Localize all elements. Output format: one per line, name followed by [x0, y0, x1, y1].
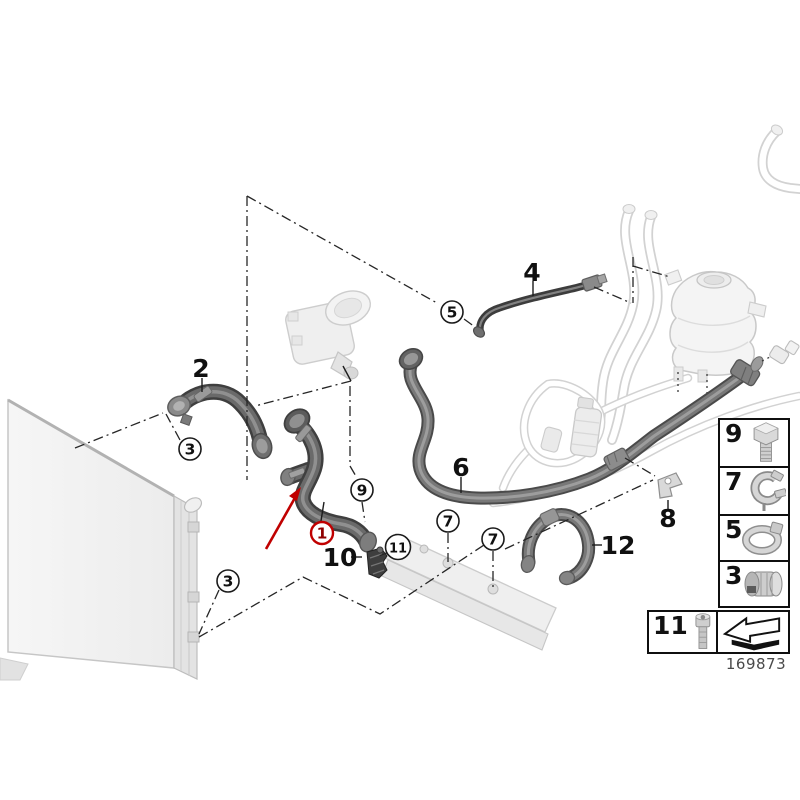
- direction-arrow-icon: [722, 612, 784, 652]
- legend-bottom-row: 11: [647, 610, 790, 654]
- legend-number: 5: [725, 517, 742, 542]
- clip-10: [367, 547, 387, 578]
- diagram-canvas: 24681012 133577911: [0, 0, 800, 800]
- hose-12-loop-hose: [520, 508, 589, 586]
- callout-3[interactable]: 3: [217, 570, 239, 592]
- callout-1[interactable]: 1: [311, 522, 333, 544]
- part-number-text: 169873: [700, 655, 800, 673]
- legend-cell-3[interactable]: 3: [720, 562, 789, 606]
- legend-cell-9[interactable]: 9: [720, 420, 789, 468]
- radiator: [0, 400, 204, 680]
- legend-number: 3: [725, 563, 742, 588]
- callout-number: 3: [185, 441, 196, 459]
- part-label-2[interactable]: 2: [192, 354, 209, 383]
- callout-5[interactable]: 5: [441, 301, 463, 323]
- callout-number: 7: [488, 531, 499, 549]
- part-label-6[interactable]: 6: [452, 453, 469, 482]
- callout-3[interactable]: 3: [179, 438, 201, 460]
- legend-cell-7[interactable]: 7: [720, 468, 789, 516]
- part-label-10[interactable]: 10: [323, 543, 358, 572]
- legend-cell-5[interactable]: 5: [720, 516, 789, 562]
- hex-bolt-icon: [746, 421, 786, 465]
- socket-bolt-icon: [688, 612, 716, 652]
- legend-number: 7: [725, 469, 742, 494]
- callout-7[interactable]: 7: [437, 510, 459, 532]
- callout-7[interactable]: 7: [482, 528, 504, 550]
- bracket-8: [658, 473, 682, 498]
- callout-number: 11: [389, 542, 407, 557]
- callout-number: 1: [317, 525, 328, 543]
- quick-coupling-icon: [742, 563, 786, 605]
- callout-number: 5: [447, 304, 458, 322]
- valve-cluster: [524, 383, 602, 463]
- highlight-arrow: [266, 487, 301, 549]
- callout-number: 9: [357, 482, 368, 500]
- hose-clamp-icon: [742, 517, 786, 559]
- part-label-4[interactable]: 4: [523, 258, 540, 287]
- legend-cell-11[interactable]: 11: [649, 612, 718, 652]
- parts-diagram-page: 24681012 133577911 9 7 5: [0, 0, 800, 800]
- spring-clip-icon: [746, 469, 786, 513]
- legend-number: 11: [653, 613, 688, 638]
- callout-number: 7: [443, 513, 454, 531]
- callout-9[interactable]: 9: [351, 479, 373, 501]
- coolant-pump: [284, 285, 375, 379]
- part-label-8[interactable]: 8: [659, 504, 676, 533]
- part-label-12[interactable]: 12: [601, 531, 636, 560]
- legend-column: 9 7 5: [718, 418, 790, 608]
- callout-11[interactable]: 11: [386, 535, 411, 560]
- callout-number: 3: [223, 573, 234, 591]
- legend-number: 9: [725, 421, 742, 446]
- legend-cell-direction[interactable]: [718, 612, 788, 652]
